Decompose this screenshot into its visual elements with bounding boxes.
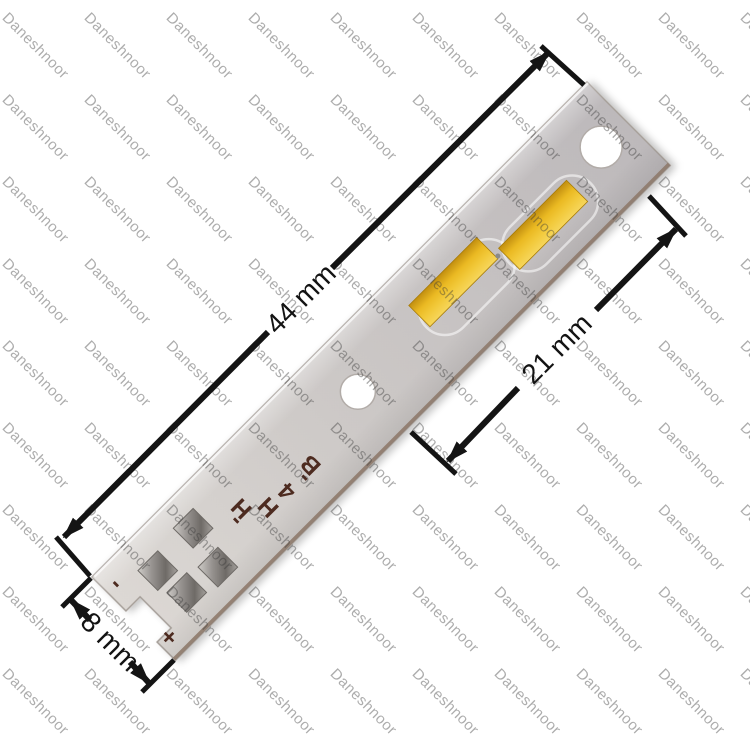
photo-svg: -H H4-B + - DaneshnoorDaneshnoorDaneshno… xyxy=(0,0,750,749)
product-photo: -H H4-B + - DaneshnoorDaneshnoorDaneshno… xyxy=(0,0,750,749)
